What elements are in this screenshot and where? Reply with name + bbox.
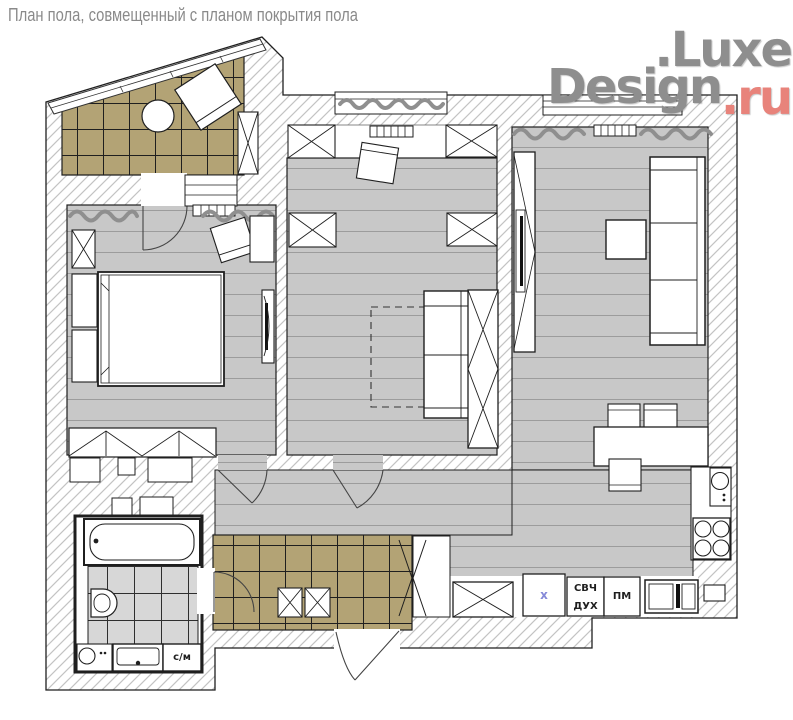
stove: [693, 518, 730, 559]
bedroom-cabinet-crossed: [72, 230, 95, 268]
toilet: [91, 589, 117, 617]
living-sofa: [650, 157, 705, 345]
bathtub: [84, 519, 200, 565]
crossed-box-top-left: [288, 125, 335, 158]
crossed-box-mid-left: [289, 213, 336, 247]
washer-label: с/м: [163, 644, 201, 671]
brand-logo: .Luxe Design .ru: [539, 26, 791, 126]
outside-shelf: [704, 585, 725, 601]
nightstand-2: [72, 330, 97, 382]
bed: [98, 272, 224, 386]
tv-unit: [514, 152, 535, 352]
floor-plan-page: План пола, совмещенный с планом покрытия…: [0, 0, 793, 720]
sofa-bed: [424, 291, 469, 418]
bath-counter: [77, 644, 112, 671]
balcony-screen: [238, 112, 258, 174]
crossed-box-top-right: [446, 125, 497, 157]
bedroom-tv: [262, 290, 274, 363]
fridge-crossed: [453, 582, 513, 617]
hall-closet: [413, 536, 450, 617]
bedroom-desk: [250, 216, 274, 262]
balcony-table: [142, 100, 174, 132]
fridge-label: х: [523, 574, 565, 616]
hall-cabinet-2: [305, 588, 330, 617]
hallway: [213, 535, 450, 680]
dishwasher-label: ПМ: [604, 577, 640, 616]
living-radiator: [594, 125, 636, 136]
bath-sink: [113, 644, 163, 671]
dining-chair-3: [609, 459, 641, 491]
nightstand-1: [72, 274, 97, 327]
oven-label: ДУХ: [567, 597, 604, 615]
hall-cabinet-1: [278, 588, 302, 617]
crossed-box-mid-right: [447, 213, 497, 246]
balcony: [48, 39, 266, 175]
microwave-label: СВЧ: [567, 579, 604, 597]
kitchen-sink-double: [645, 580, 698, 613]
logo-ru: .ru: [721, 74, 791, 122]
bedroom-wardrobe-sliding: [69, 428, 216, 457]
tall-wardrobe-crossed: [468, 290, 498, 448]
kitchen-sink-small: [710, 468, 731, 506]
middle-chair: [356, 142, 398, 183]
middle-room: [287, 92, 498, 455]
corridor-floor: [215, 470, 512, 535]
logo-design: Design: [547, 63, 721, 111]
coffee-table: [606, 220, 646, 259]
